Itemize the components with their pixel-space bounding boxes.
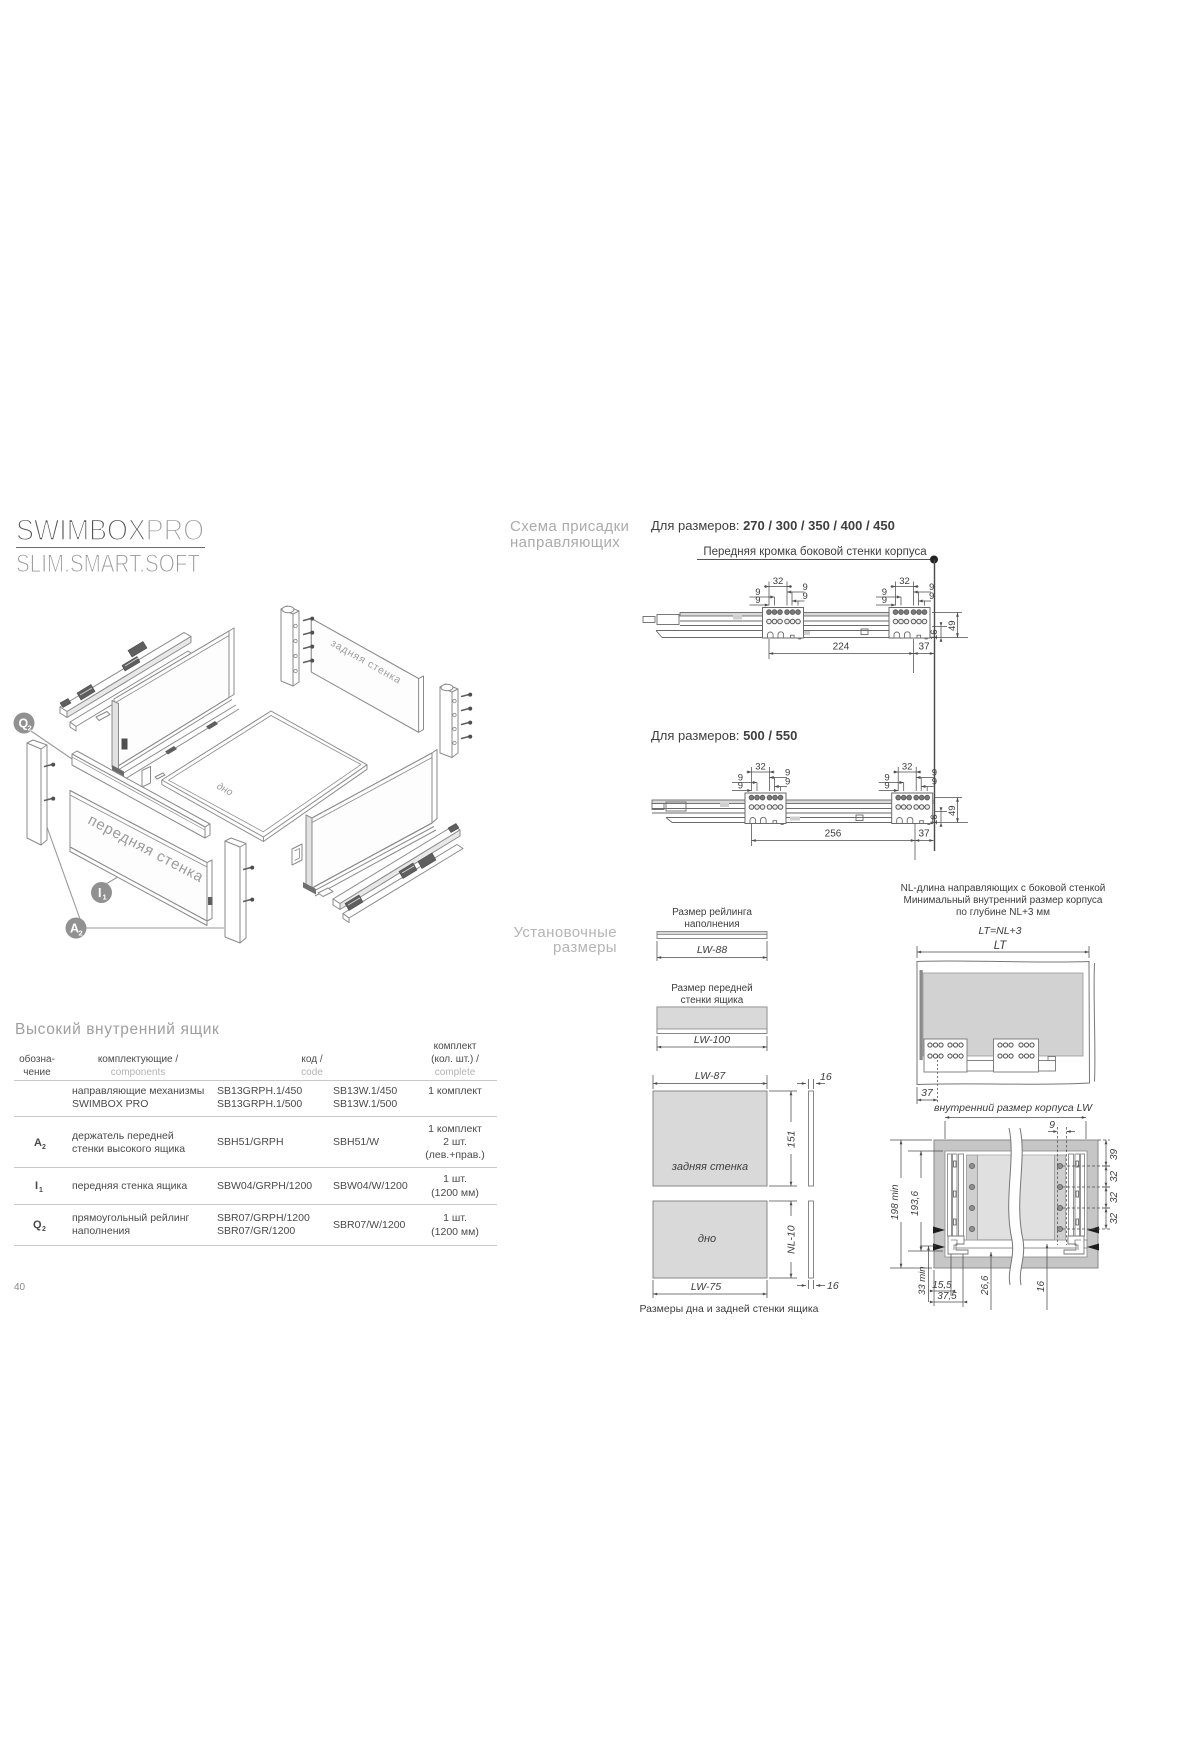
- svg-text:комплект: комплект: [434, 1041, 477, 1052]
- svg-text:NL-10: NL-10: [786, 1225, 798, 1254]
- svg-text:complete: complete: [435, 1067, 476, 1078]
- svg-text:код /: код /: [301, 1054, 322, 1065]
- svg-text:размеры: размеры: [553, 939, 617, 956]
- svg-text:16: 16: [929, 814, 940, 825]
- svg-text:наполнения: наполнения: [72, 1225, 130, 1237]
- svg-text:components: components: [111, 1067, 165, 1078]
- svg-text:Размер рейлинга: Размер рейлинга: [672, 907, 752, 918]
- svg-text:2: 2: [79, 929, 83, 938]
- svg-text:(лев.+прав.): (лев.+прав.): [425, 1149, 484, 1161]
- svg-text:Размер передней: Размер передней: [671, 983, 753, 994]
- svg-text:LW-75: LW-75: [691, 1281, 722, 1293]
- svg-text:LT=NL+3: LT=NL+3: [979, 925, 1022, 937]
- svg-text:151: 151: [786, 1130, 798, 1148]
- svg-text:224: 224: [833, 642, 850, 653]
- svg-text:обозна-: обозна-: [19, 1053, 55, 1065]
- svg-text:направляющих: направляющих: [510, 534, 620, 551]
- svg-text:33 min: 33 min: [917, 1266, 928, 1295]
- svg-text:Высокий внутренний ящик: Высокий внутренний ящик: [15, 1021, 219, 1038]
- svg-text:задняя стенка: задняя стенка: [671, 1161, 748, 1173]
- svg-text:SB13W.1/500: SB13W.1/500: [333, 1098, 397, 1110]
- svg-text:32: 32: [1109, 1212, 1120, 1224]
- svg-text:стенки высокого ящика: стенки высокого ящика: [72, 1143, 185, 1155]
- svg-text:16: 16: [1036, 1280, 1047, 1292]
- svg-text:1 шт.: 1 шт.: [443, 1212, 467, 1224]
- svg-text:1: 1: [103, 893, 107, 902]
- svg-text:2: 2: [42, 1226, 46, 1233]
- svg-text:1 комплект: 1 комплект: [428, 1085, 482, 1097]
- svg-text:Для размеров: 270 / 300 / 350: Для размеров: 270 / 300 / 350 / 400 / 45…: [651, 518, 895, 533]
- svg-text:SBR07/GRPH/1200: SBR07/GRPH/1200: [217, 1212, 310, 1224]
- svg-text:чение: чение: [23, 1067, 51, 1078]
- svg-text:2: 2: [28, 724, 32, 733]
- svg-text:LT: LT: [994, 940, 1008, 952]
- svg-text:code: code: [301, 1067, 323, 1078]
- svg-text:Q: Q: [33, 1219, 42, 1231]
- svg-text:Размеры дна и задней стенки ящ: Размеры дна и задней стенки ящика: [639, 1303, 818, 1315]
- svg-text:16: 16: [820, 1071, 832, 1083]
- svg-text:16: 16: [827, 1280, 839, 1292]
- svg-text:SWIMBOX PRO: SWIMBOX PRO: [72, 1098, 148, 1110]
- svg-text:NL-длина направляющих с боково: NL-длина направляющих с боковой стенкой: [901, 882, 1106, 894]
- svg-text:49: 49: [947, 805, 958, 816]
- svg-text:стенки ящика: стенки ящика: [681, 995, 744, 1006]
- svg-text:A: A: [34, 1137, 42, 1149]
- svg-text:(кол. шт.) /: (кол. шт.) /: [431, 1054, 479, 1065]
- svg-text:32: 32: [1109, 1191, 1120, 1203]
- svg-text:(1200 мм): (1200 мм): [431, 1187, 479, 1199]
- svg-text:37: 37: [918, 829, 930, 840]
- svg-text:(1200 мм): (1200 мм): [431, 1226, 479, 1238]
- svg-text:SLIM.SMART.SOFT: SLIM.SMART.SOFT: [16, 550, 200, 578]
- svg-text:Для размеров: 500 / 550: Для размеров: 500 / 550: [651, 728, 797, 743]
- svg-text:SBH51/GRPH: SBH51/GRPH: [217, 1136, 284, 1148]
- svg-text:Схема присадки: Схема присадки: [510, 518, 629, 535]
- svg-text:Минимальный внутренний размер: Минимальный внутренний размер корпуса: [904, 895, 1103, 906]
- svg-text:1: 1: [39, 1187, 43, 1194]
- svg-text:256: 256: [825, 829, 842, 840]
- svg-text:40: 40: [14, 1282, 26, 1293]
- svg-text:193,6: 193,6: [910, 1191, 921, 1216]
- svg-text:37: 37: [918, 642, 930, 653]
- svg-text:37,5: 37,5: [937, 1291, 957, 1302]
- svg-text:SWIMBOXPRO: SWIMBOXPRO: [16, 514, 204, 547]
- svg-text:I: I: [98, 886, 101, 900]
- svg-text:SBR07/GR/1200: SBR07/GR/1200: [217, 1225, 295, 1237]
- svg-text:дно: дно: [698, 1233, 716, 1245]
- svg-text:2: 2: [42, 1144, 46, 1151]
- svg-text:по глубине NL+3 мм: по глубине NL+3 мм: [956, 906, 1050, 918]
- svg-text:9: 9: [1049, 1119, 1055, 1131]
- svg-text:SBR07/W/1200: SBR07/W/1200: [333, 1219, 406, 1231]
- svg-text:SB13GRPH.1/450: SB13GRPH.1/450: [217, 1085, 302, 1097]
- svg-text:SB13W.1/450: SB13W.1/450: [333, 1085, 397, 1097]
- svg-text:49: 49: [947, 620, 958, 631]
- svg-text:1 комплект: 1 комплект: [428, 1123, 482, 1135]
- svg-text:LW-88: LW-88: [697, 944, 728, 956]
- svg-text:прямоугольный рейлинг: прямоугольный рейлинг: [72, 1212, 190, 1224]
- svg-text:15,5: 15,5: [932, 1280, 952, 1291]
- svg-text:32: 32: [1109, 1170, 1120, 1182]
- svg-text:SBW04/GRPH/1200: SBW04/GRPH/1200: [217, 1180, 312, 1192]
- svg-text:LW-87: LW-87: [695, 1070, 727, 1082]
- svg-text:наполнения: наполнения: [684, 919, 739, 930]
- svg-text:внутренний размер корпуса LW: внутренний размер корпуса LW: [934, 1102, 1093, 1114]
- svg-text:16: 16: [929, 629, 940, 640]
- svg-text:SB13GRPH.1/500: SB13GRPH.1/500: [217, 1098, 302, 1110]
- svg-text:39: 39: [1109, 1148, 1120, 1160]
- svg-text:37: 37: [921, 1087, 934, 1099]
- svg-text:SBH51/W: SBH51/W: [333, 1136, 379, 1148]
- svg-text:SBW04/W/1200: SBW04/W/1200: [333, 1180, 408, 1192]
- svg-text:1 шт.: 1 шт.: [443, 1173, 467, 1185]
- svg-text:I: I: [35, 1180, 38, 1192]
- svg-text:LW-100: LW-100: [694, 1034, 730, 1046]
- svg-text:26,6: 26,6: [980, 1275, 991, 1296]
- svg-text:комплектующие /: комплектующие /: [98, 1054, 179, 1065]
- svg-text:передняя стенка ящика: передняя стенка ящика: [72, 1180, 187, 1192]
- svg-text:держатель передней: держатель передней: [72, 1130, 174, 1142]
- svg-text:направляющие механизмы: направляющие механизмы: [72, 1085, 204, 1097]
- svg-text:Передняя кромка боковой стенки: Передняя кромка боковой стенки корпуса: [703, 546, 927, 558]
- svg-text:2 шт.: 2 шт.: [443, 1136, 467, 1148]
- svg-text:198 min: 198 min: [890, 1184, 901, 1220]
